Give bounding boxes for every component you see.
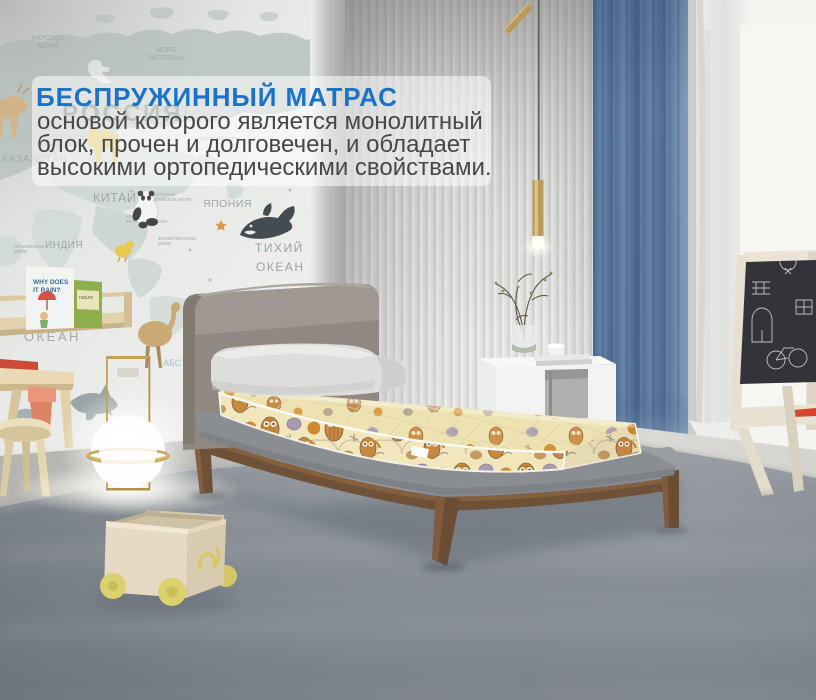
svg-text:АБС: АБС: [163, 358, 182, 368]
svg-text:WHY DOES: WHY DOES: [33, 279, 69, 286]
svg-text:nature: nature: [79, 295, 93, 301]
